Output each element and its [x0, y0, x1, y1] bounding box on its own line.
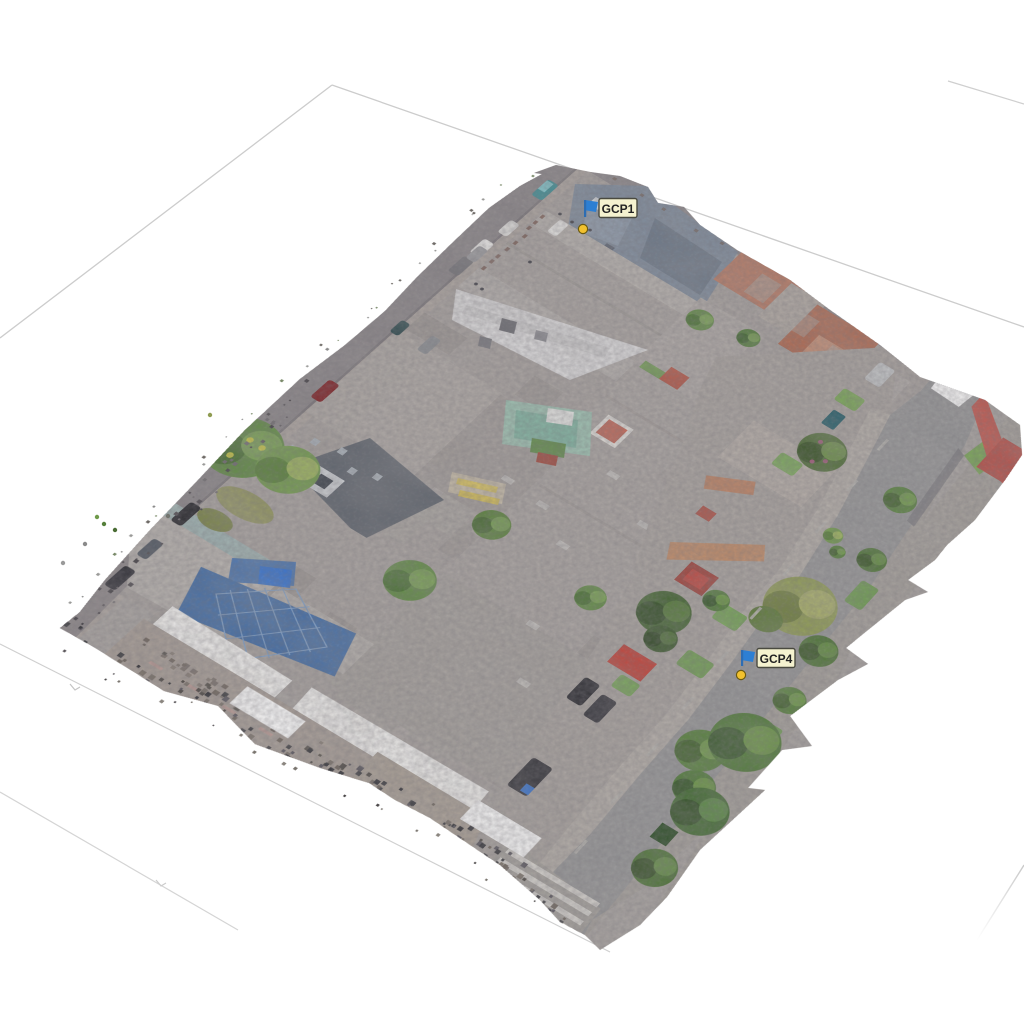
svg-text:GCP1: GCP1	[602, 202, 635, 216]
svg-text:GCP4: GCP4	[760, 652, 793, 666]
